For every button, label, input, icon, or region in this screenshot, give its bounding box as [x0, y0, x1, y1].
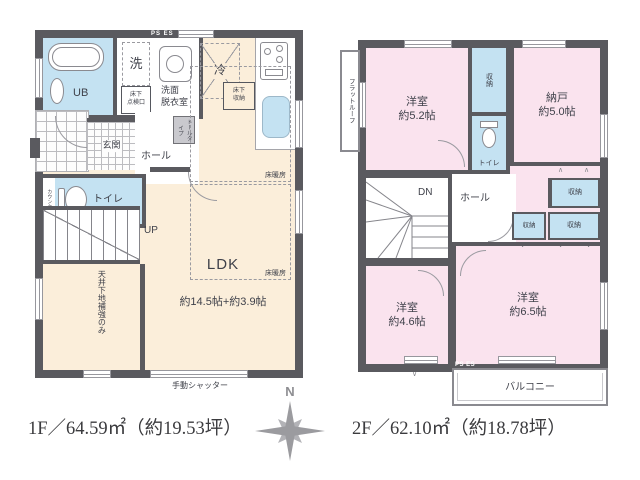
window — [404, 40, 452, 48]
balcony: バルコニー — [452, 368, 608, 406]
bedroom-4-6-name: 洋室 — [396, 301, 418, 315]
room-toilet-2f: トイレ — [472, 116, 510, 174]
bath-stool-icon — [50, 78, 64, 104]
window — [498, 356, 556, 364]
toilet-label-1f: トイレ — [93, 193, 123, 206]
ub-label: UB — [73, 86, 88, 100]
toilet-label-2f: トイレ — [472, 159, 506, 168]
bedroom-5-2-door-arc — [438, 140, 465, 167]
washroom-label: 洗面 脱衣室 — [161, 85, 188, 108]
ceiling-note-label: 天井下地補強のみ — [96, 270, 106, 360]
ldk-size: 約14.5帖+約3.9帖 — [148, 295, 298, 309]
balcony-rail-line — [457, 373, 603, 401]
window — [600, 282, 608, 330]
stairs-diagonal-line — [43, 210, 140, 260]
stairs-lines-icon — [366, 178, 448, 258]
bedroom-6-5-door-arc — [460, 250, 486, 276]
washer-space: 洗 — [122, 42, 150, 86]
room-storeroom: 納戸 約5.0帖 — [510, 48, 600, 166]
flat-roof-label: フラットルーフ — [346, 78, 354, 124]
bathtub-icon — [48, 43, 104, 71]
stairs-2f: DN — [366, 174, 452, 262]
entrance-label: 玄関 — [101, 140, 121, 152]
ldk-name: LDK — [148, 255, 298, 275]
window — [600, 114, 608, 158]
window — [522, 40, 566, 48]
burner-icon — [276, 56, 283, 63]
room-bedroom-6-5: 洋室 約6.5帖 — [452, 242, 600, 364]
washing-machine-drum-icon — [166, 55, 184, 73]
window — [295, 100, 303, 148]
toilet-tank-icon — [480, 121, 498, 128]
storeroom-name: 納戸 — [546, 91, 568, 105]
inspection-hatch-label: 床下 点検口 — [121, 86, 151, 114]
floorplan-2f: 洋室 約5.2帖 収納 トイレ 納戸 約5.0帖 — [358, 40, 608, 372]
closet-label: 収納 — [484, 73, 493, 87]
toilet-bowl-icon — [482, 128, 496, 148]
closet-label: 収納 — [567, 221, 581, 230]
floor1-caption: 1F／64.59㎡（約19.53坪） — [28, 414, 242, 440]
porch-pillar — [30, 138, 40, 158]
ldk-label: LDK 約14.5帖+約3.9帖 — [148, 234, 298, 330]
hall-label-2f: ホール — [460, 192, 490, 205]
stairs-up-label: UP — [144, 224, 158, 237]
floor-heating-label: 床暖房 — [265, 171, 286, 180]
room-bedroom-4-6: 洋室 約4.6帖 — [366, 262, 452, 364]
window — [83, 370, 111, 378]
floor-heating-zone: 床暖房 — [190, 66, 291, 182]
bedroom-4-6-door-arc — [418, 270, 444, 296]
window — [35, 58, 43, 98]
room-bedroom-5-2: 洋室 約5.2帖 — [366, 48, 472, 174]
floorplan-1f: UB 洗 床下 点検口 洗面 脱衣室 PS ES 冷 床下 収納 玄関 — [35, 30, 303, 378]
room-unit-bath: UB — [43, 38, 117, 119]
closet-b: 収納 — [512, 212, 546, 240]
window — [404, 356, 438, 364]
room-hall-2f: ホール — [452, 174, 516, 244]
folding-door-mark: ∧ — [558, 167, 563, 174]
shutter-label: 手動シャッター — [148, 381, 252, 391]
ps-es-label-1f: PS ES — [151, 31, 174, 39]
stairs-1f — [43, 206, 140, 264]
washing-machine-pan-icon — [159, 46, 192, 82]
shutter-mark: ∨ — [412, 371, 417, 378]
window — [295, 190, 303, 234]
closet-label: 収納 — [568, 188, 582, 197]
bedroom-5-2-size: 約5.2帖 — [398, 109, 435, 123]
window — [150, 370, 248, 378]
burner-icon — [264, 48, 271, 55]
window — [178, 30, 214, 38]
hall-label-1f: ホール — [141, 150, 171, 163]
storeroom-size: 約5.0帖 — [538, 105, 575, 119]
left-room-divider-wall — [140, 264, 145, 370]
bedroom-6-5-size: 約6.5帖 — [509, 305, 546, 319]
hall-ldk-wall — [150, 167, 190, 172]
burner-icon — [276, 45, 283, 52]
stairs-down-label: DN — [418, 186, 432, 199]
closet-c: 収納 — [548, 212, 600, 240]
ps-es-label-2f: PS ES — [455, 362, 475, 370]
hall-door-arc — [488, 216, 514, 242]
compass-rose-icon — [253, 399, 327, 463]
compass: N — [252, 384, 328, 464]
washer-label: 洗 — [129, 56, 142, 73]
floorplan-page: { "captions": { "floor1": "1F／64.59㎡（約19… — [0, 0, 640, 480]
folding-door-mark: ∧ — [584, 167, 589, 174]
bathtub-inner-icon — [52, 47, 100, 67]
bedroom-6-5-name: 洋室 — [517, 291, 539, 305]
flat-roof: フラットルーフ — [340, 50, 360, 152]
floor2-caption: 2F／62.10㎡（約18.78坪） — [352, 414, 566, 440]
closet-top: 収納 — [472, 48, 510, 116]
closet-label: 収納 — [523, 222, 536, 230]
room-entrance: 玄関 — [87, 118, 137, 170]
window — [35, 278, 43, 320]
bedroom-4-6-size: 約4.6帖 — [388, 315, 425, 329]
bedroom-5-2-name: 洋室 — [406, 95, 428, 109]
closet-a: 収納 — [548, 178, 600, 208]
